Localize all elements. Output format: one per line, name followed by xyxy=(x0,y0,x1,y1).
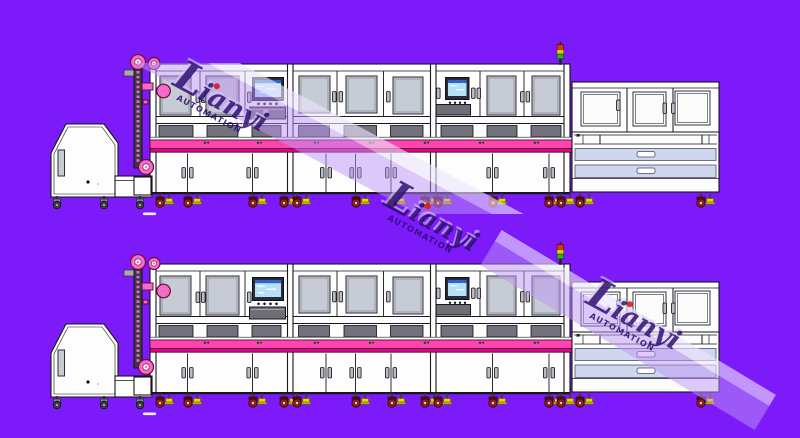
cad-screenshot: Lianyi Lianyi AUTOMATION xyxy=(0,0,800,438)
cad-canvas: Lianyi Lianyi AUTOMATION xyxy=(0,0,800,438)
